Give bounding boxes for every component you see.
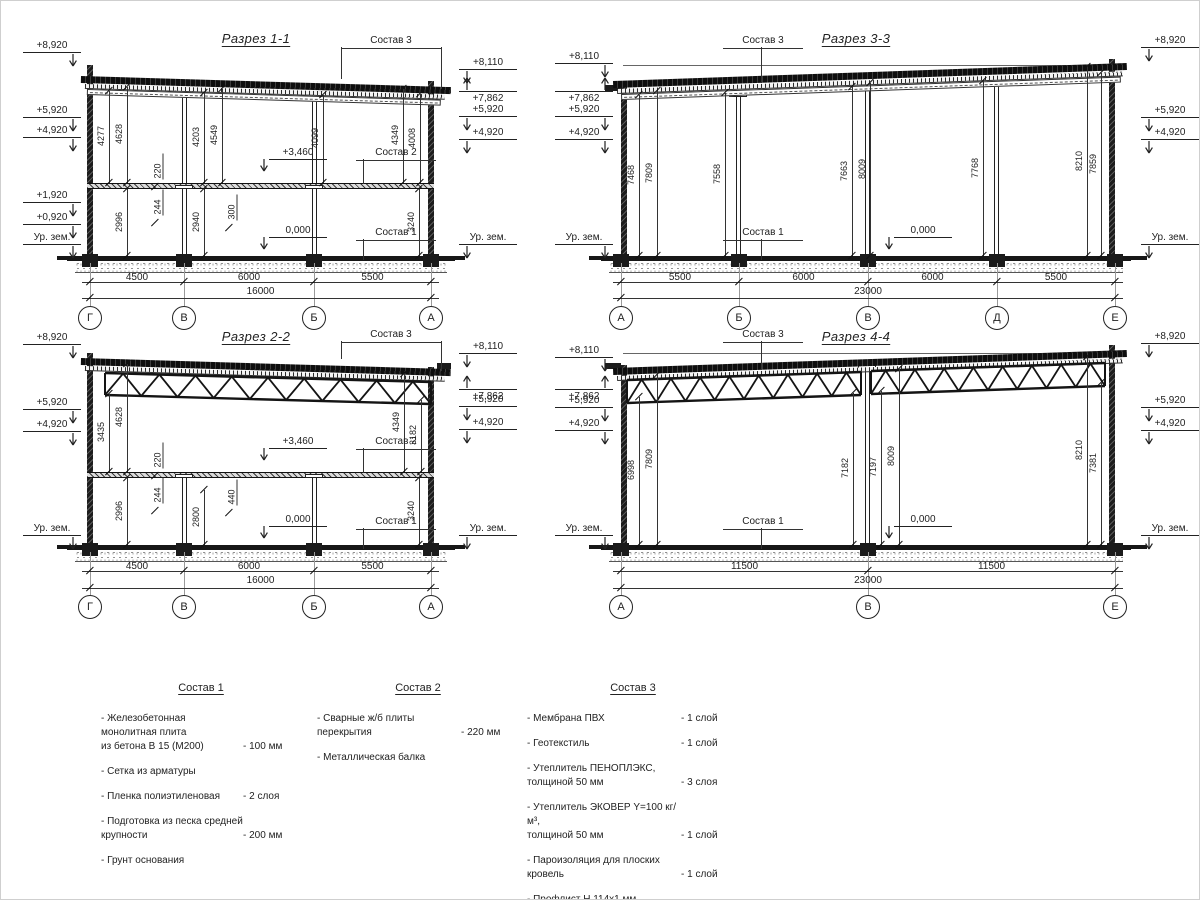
legend-item-text: - Мембрана ПВХ — [527, 712, 605, 726]
dim-value: 7182 — [840, 438, 850, 498]
dim-tick — [151, 507, 159, 515]
grid-bubble: Г — [78, 306, 102, 330]
level-arrow-icon — [258, 159, 270, 173]
dim-value: 2940 — [191, 192, 201, 252]
level-mark: 0,000 — [269, 225, 327, 238]
elevation-mark: +5,920 — [555, 104, 613, 117]
callout-label: Состав 2 — [351, 436, 441, 447]
dim-line — [657, 91, 658, 256]
legend-item: - Утеплитель ПЕНОПЛЭКС, толщиной 50 мм- … — [527, 762, 739, 790]
grid-bubble: В — [172, 306, 196, 330]
elevation-text: Ур. зем. — [459, 523, 517, 536]
callout-underline — [356, 240, 436, 241]
floor-slab — [87, 472, 434, 478]
elevation-arrow-icon — [1143, 49, 1155, 63]
level-mark: +3,460 — [269, 436, 327, 449]
dim-value: 7809 — [644, 143, 654, 203]
legend-item-text: - Подготовка из песка средней крупности — [101, 815, 243, 843]
legend-item-text: - Сварные ж/б плиты перекрытия — [317, 712, 461, 740]
elevation-arrow-icon — [599, 374, 611, 388]
elevation-mark: +4,920 — [23, 125, 81, 138]
column — [312, 478, 317, 545]
legend-title: Состав 1 — [101, 681, 301, 696]
elevation-mark: +8,920 — [1141, 331, 1199, 344]
dim-value: 6998 — [626, 440, 636, 500]
dim-total-line — [613, 588, 1123, 589]
legend-item-value: - 2 слоя — [243, 790, 301, 804]
grid-bubble: А — [609, 595, 633, 619]
elevation-text: +5,920 — [555, 104, 613, 117]
dim-line — [1101, 73, 1102, 256]
level-mark: +3,460 — [269, 147, 327, 160]
elevation-text: Ур. зем. — [1141, 232, 1199, 245]
elevation-arrow-icon — [67, 537, 79, 551]
grid-bubble: В — [856, 306, 880, 330]
legend-item: - Сварные ж/б плиты перекрытия- 220 мм — [317, 712, 519, 740]
elevation-arrow-icon — [67, 346, 79, 360]
elevation-arrow-icon — [599, 141, 611, 155]
elevation-text: +5,920 — [23, 397, 81, 410]
legend-column: Состав 2- Сварные ж/б плиты перекрытия- … — [317, 681, 519, 776]
drawing-canvas: Разрез 1-1427746284203454940994349400829… — [0, 0, 1200, 900]
callout-leader — [761, 47, 762, 83]
elevation-text: +8,110 — [459, 57, 517, 70]
elevation-arrow-icon — [67, 139, 79, 153]
elevation-arrow-icon — [461, 246, 473, 260]
callout-underline — [356, 449, 436, 450]
elevation-mark: +5,920 — [1141, 105, 1199, 118]
legend-column: Состав 1- Железобетонная монолитная плит… — [101, 681, 301, 879]
elevation-arrow-icon — [599, 537, 611, 551]
dim-value: 7768 — [970, 138, 980, 198]
column-capital — [175, 474, 193, 478]
elevation-mark: +4,920 — [1141, 127, 1199, 140]
elevation-mark: +8,110 — [459, 341, 517, 354]
grid-extension-line — [90, 263, 91, 306]
elevation-mark: +5,920 — [459, 394, 517, 407]
callout-underline — [341, 342, 441, 343]
dim-line — [109, 394, 110, 472]
column — [182, 189, 187, 257]
dim-value: 7558 — [712, 144, 722, 204]
elevation-mark: Ур. зем. — [23, 232, 81, 245]
legend-title: Состав 3 — [527, 681, 739, 696]
level-mark: 0,000 — [894, 225, 952, 238]
grid-extension-line — [997, 263, 998, 306]
elevation-text: +1,920 — [23, 190, 81, 203]
callout-leader — [761, 528, 762, 549]
legend-item-value: - 1 слой — [681, 737, 739, 751]
elevation-mark: Ур. зем. — [459, 232, 517, 245]
steel-truss — [103, 370, 433, 407]
elevation-text: +4,920 — [23, 125, 81, 138]
elevation-mark: Ур. зем. — [23, 523, 81, 536]
callout-leader — [363, 239, 364, 260]
legend-item-text: - Железобетонная монолитная плита из бет… — [101, 712, 243, 754]
grid-bubble: Б — [727, 306, 751, 330]
elevation-text: +4,920 — [555, 127, 613, 140]
dim-value: 8009 — [886, 426, 896, 486]
callout-underline — [356, 529, 436, 530]
grid-bubble: В — [856, 595, 880, 619]
dim-line — [419, 478, 420, 545]
dim-total-line — [82, 298, 439, 299]
dim-value: 8009 — [857, 139, 867, 199]
dim-value-small: 220 — [153, 154, 164, 180]
elevation-text: +7,862 — [555, 91, 613, 104]
elevation-text: +8,920 — [23, 40, 81, 53]
dim-value: 2996 — [114, 192, 124, 252]
elevation-text: Ур. зем. — [555, 523, 613, 536]
column — [994, 85, 999, 256]
legend-item-text: - Сетка из арматуры — [101, 765, 196, 779]
callout-label: Состав 1 — [718, 227, 808, 238]
elevation-mark: +4,920 — [1141, 418, 1199, 431]
elevation-mark: +5,920 — [459, 104, 517, 117]
elevation-text: Ур. зем. — [23, 232, 81, 245]
dim-total-label: 16000 — [90, 286, 431, 297]
dim-line — [639, 95, 640, 256]
dim-value: 3182 — [408, 405, 418, 465]
section-title: Разрез 1-1 — [176, 31, 336, 46]
elevation-arrow-icon — [1143, 537, 1155, 551]
legend-item-value: - 3 слоя — [681, 776, 739, 790]
dim-total-label: 23000 — [621, 575, 1115, 586]
elevation-mark: +4,920 — [23, 419, 81, 432]
dim-label: 6000 — [184, 561, 314, 572]
elevation-arrow-icon — [461, 431, 473, 445]
elevation-text: +8,920 — [1141, 35, 1199, 48]
level-arrow-icon — [258, 448, 270, 462]
elevation-mark: +5,920 — [1141, 395, 1199, 408]
elevation-text: +4,920 — [23, 419, 81, 432]
elevation-arrow-icon — [461, 374, 473, 388]
elevation-text: Ур. зем. — [1141, 523, 1199, 536]
elevation-arrow-icon — [599, 432, 611, 446]
dim-value: 4203 — [191, 107, 201, 167]
callout-leader — [441, 47, 442, 89]
legend-item-text: - Металлическая балка — [317, 751, 425, 765]
dim-value: 3240 — [406, 192, 416, 252]
elevation-mark: +4,920 — [459, 417, 517, 430]
callout-label: Состав 3 — [346, 329, 436, 340]
elevation-text: +8,920 — [23, 332, 81, 345]
callout-leader — [341, 341, 342, 359]
legend-item-value: - 1 слой — [681, 868, 739, 882]
column — [182, 478, 187, 545]
elevation-text: Ур. зем. — [555, 232, 613, 245]
dim-tick — [225, 509, 233, 517]
dim-value-small: 244 — [153, 190, 164, 216]
legend-item: - Пароизоляция для плоских кровель- 1 сл… — [527, 854, 739, 882]
dim-line — [983, 81, 984, 256]
elevation-arrow-icon — [461, 355, 473, 369]
elevation-text: +4,920 — [1141, 418, 1199, 431]
callout-underline — [723, 240, 803, 241]
elevation-text: +5,920 — [1141, 105, 1199, 118]
elevation-arrow-icon — [1143, 432, 1155, 446]
dim-total-line — [82, 588, 439, 589]
dim-line — [420, 94, 421, 183]
callout-underline — [723, 48, 803, 49]
dim-line — [853, 393, 854, 545]
dim-label: 4500 — [90, 272, 184, 283]
elevation-text: Ур. зем. — [459, 232, 517, 245]
dim-value: 7468 — [626, 145, 636, 205]
legend-item: - Сетка из арматуры — [101, 765, 301, 779]
steel-truss — [869, 360, 1107, 397]
dim-value: 7197 — [868, 437, 878, 497]
elevation-arrow-icon — [1143, 345, 1155, 359]
callout-underline — [723, 529, 803, 530]
dim-value: 7859 — [1088, 134, 1098, 194]
elevation-mark: Ур. зем. — [459, 523, 517, 536]
elevation-arrow-icon — [461, 141, 473, 155]
grid-bubble: А — [419, 595, 443, 619]
dim-line — [204, 93, 205, 183]
callout-leader — [761, 239, 762, 260]
elevation-mark: +8,110 — [459, 57, 517, 70]
level-mark: 0,000 — [269, 514, 327, 527]
elevation-text: +5,920 — [459, 394, 517, 407]
callout-leader — [761, 341, 762, 369]
callout-underline — [341, 48, 441, 49]
grid-bubble: А — [419, 306, 443, 330]
dim-total-label: 16000 — [90, 575, 431, 586]
dim-line — [870, 83, 871, 256]
grid-bubble: Д — [985, 306, 1009, 330]
elevation-text: +8,110 — [555, 345, 613, 358]
grid-extension-line — [621, 263, 622, 306]
level-arrow-icon — [883, 237, 895, 251]
elevation-mark: +4,920 — [459, 127, 517, 140]
legend-item-text: - Профлист Н 114х1 мм — [527, 893, 636, 900]
dim-value-small: 220 — [153, 443, 164, 469]
grid-extension-line — [739, 263, 740, 306]
elevation-text: Ур. зем. — [23, 523, 81, 536]
elevation-mark: +8,920 — [23, 332, 81, 345]
elevation-mark: +5,920 — [23, 397, 81, 410]
dim-line — [419, 189, 420, 256]
dim-value: 7809 — [644, 429, 654, 489]
legend-item-value: - 100 мм — [243, 740, 301, 754]
floor-slab — [87, 183, 434, 189]
grid-extension-line — [431, 263, 432, 306]
legend-item: - Геотекстиль- 1 слой — [527, 737, 739, 751]
legend-item: - Утеплитель ЭКОВЕР Y=100 кг/м³, толщино… — [527, 801, 739, 843]
elevation-mark: +4,920 — [555, 418, 613, 431]
column-capital — [175, 185, 193, 189]
dim-label: 5500 — [997, 272, 1115, 283]
legend-item-text: - Грунт основания — [101, 854, 184, 868]
legend-column: Состав 3- Мембрана ПВХ- 1 слой- Геотекст… — [527, 681, 739, 900]
legend-item: - Профлист Н 114х1 мм — [527, 893, 739, 900]
column — [312, 189, 317, 257]
callout-label: Состав 1 — [351, 227, 441, 238]
grid-bubble: А — [609, 306, 633, 330]
callout-label: Состав 1 — [351, 516, 441, 527]
elevation-mark: +8,110 — [555, 345, 613, 358]
elevation-mark: Ур. зем. — [555, 232, 613, 245]
wall — [1109, 59, 1115, 257]
dim-label: 4500 — [90, 561, 184, 572]
elevation-text: +0,920 — [23, 212, 81, 225]
elevation-arrow-icon — [67, 246, 79, 260]
elevation-arrow-icon — [67, 54, 79, 68]
legend-item-value: - 1 слой — [681, 712, 739, 726]
grid-bubble: Б — [302, 306, 326, 330]
elevation-arrow-icon — [599, 246, 611, 260]
callout-underline — [723, 342, 803, 343]
dim-label: 11500 — [868, 561, 1115, 572]
grid-extension-line — [1115, 263, 1116, 306]
callout-label: Состав 2 — [351, 147, 441, 158]
dim-value: 4277 — [96, 106, 106, 166]
elevation-text: +4,920 — [1141, 127, 1199, 140]
grid-extension-line — [868, 263, 869, 306]
elevation-text: +4,920 — [555, 418, 613, 431]
dim-line — [852, 87, 853, 256]
level-arrow-icon — [258, 526, 270, 540]
dim-value: 4628 — [114, 387, 124, 447]
elevation-arrow-icon — [461, 76, 473, 90]
elevation-arrow-icon — [599, 359, 611, 373]
dim-line — [109, 91, 110, 183]
column-capital — [305, 474, 323, 478]
grid-bubble: Г — [78, 595, 102, 619]
level-mark: 0,000 — [894, 514, 952, 527]
column — [182, 93, 187, 183]
dim-value: 4628 — [114, 104, 124, 164]
elevation-mark: +8,920 — [23, 40, 81, 53]
dim-label: 11500 — [621, 561, 868, 572]
legend-item-text: - Пароизоляция для плоских кровель — [527, 854, 681, 882]
callout-label: Состав 3 — [346, 35, 436, 46]
callout-label: Состав 3 — [718, 329, 808, 340]
dim-value-small: 244 — [153, 478, 164, 504]
grid-bubble: Е — [1103, 306, 1127, 330]
dim-line — [403, 89, 404, 183]
grid-bubble: В — [172, 595, 196, 619]
dim-line — [639, 397, 640, 545]
level-arrow-icon — [258, 237, 270, 251]
elevation-text: +5,920 — [459, 104, 517, 117]
elevation-arrow-icon — [1143, 246, 1155, 260]
elevation-mark: +0,920 — [23, 212, 81, 225]
dim-value: 4008 — [407, 108, 417, 168]
wall — [1109, 345, 1115, 545]
elevation-mark: +5,920 — [555, 395, 613, 408]
dim-line — [127, 87, 128, 183]
elevation-text: +8,110 — [459, 341, 517, 354]
dim-tick — [151, 219, 159, 227]
legend-item-text: - Утеплитель ЭКОВЕР Y=100 кг/м³, толщино… — [527, 801, 681, 843]
elevation-mark: +4,920 — [555, 127, 613, 140]
dim-label: 6000 — [868, 272, 997, 283]
elevation-arrow-icon — [1143, 141, 1155, 155]
grid-bubble: Е — [1103, 595, 1127, 619]
elevation-text: +5,920 — [555, 395, 613, 408]
callout-leader — [363, 528, 364, 549]
callout-leader — [341, 47, 342, 79]
wall — [87, 353, 93, 545]
dim-value-small: 440 — [227, 480, 238, 506]
dim-line — [127, 478, 128, 545]
level-arrow-icon — [883, 526, 895, 540]
dim-value: 8210 — [1074, 131, 1084, 191]
elevation-text: +5,920 — [1141, 395, 1199, 408]
legend-item-text: - Геотекстиль — [527, 737, 590, 751]
callout-label: Состав 1 — [718, 516, 808, 527]
elevation-arrow-icon — [461, 537, 473, 551]
legend-title: Состав 2 — [317, 681, 519, 696]
legend-item: - Подготовка из песка средней крупности-… — [101, 815, 301, 843]
elevation-text: +4,920 — [459, 127, 517, 140]
elevation-mark: +7,862 — [459, 91, 517, 104]
dim-value: 2996 — [114, 481, 124, 541]
dim-label: 5500 — [621, 272, 739, 283]
elevation-text: +8,920 — [1141, 331, 1199, 344]
legend-item-text: - Утеплитель ПЕНОПЛЭКС, толщиной 50 мм — [527, 762, 655, 790]
elevation-mark: +7,862 — [555, 91, 613, 104]
dim-line — [204, 490, 205, 545]
callout-label: Состав 3 — [718, 35, 808, 46]
elevation-text: +4,920 — [459, 417, 517, 430]
dim-label: 6000 — [184, 272, 314, 283]
elevation-mark: +8,920 — [1141, 35, 1199, 48]
dim-line — [222, 89, 223, 183]
grid-bubble: Б — [302, 595, 326, 619]
dim-value: 7381 — [1088, 433, 1098, 493]
dim-label: 5500 — [314, 561, 431, 572]
callout-leader — [363, 159, 364, 184]
callout-underline — [356, 160, 436, 161]
elevation-text: +5,920 — [23, 105, 81, 118]
grid-extension-line — [314, 263, 315, 306]
grid-extension-line — [184, 263, 185, 306]
dim-value-small: 300 — [227, 195, 238, 221]
legend-item: - Железобетонная монолитная плита из бет… — [101, 712, 301, 754]
dim-line — [1101, 383, 1102, 545]
dim-value: 3240 — [406, 481, 416, 541]
dim-value: 3435 — [96, 402, 106, 462]
elevation-mark: Ур. зем. — [555, 523, 613, 536]
callout-leader — [441, 341, 442, 371]
legend-item: - Мембрана ПВХ- 1 слой — [527, 712, 739, 726]
dim-line — [127, 189, 128, 256]
legend-item: - Грунт основания — [101, 854, 301, 868]
dim-label: 5500 — [314, 272, 431, 283]
dim-line — [881, 391, 882, 545]
dim-line — [323, 95, 324, 183]
elevation-arrow-icon — [599, 76, 611, 90]
dim-line — [404, 374, 405, 472]
dim-line — [657, 375, 658, 545]
dim-value: 4549 — [209, 105, 219, 165]
elevation-text: +7,862 — [459, 91, 517, 104]
elevation-mark: Ур. зем. — [1141, 523, 1199, 536]
dim-line — [204, 189, 205, 256]
legend-item-text: - Пленка полиэтиленовая — [101, 790, 220, 804]
legend-item-value: - 200 мм — [243, 829, 301, 843]
legend-item-value: - 220 мм — [461, 726, 519, 740]
steel-truss — [625, 369, 863, 406]
elevation-mark: +1,920 — [23, 190, 81, 203]
dim-total-line — [613, 298, 1123, 299]
legend-item-value: - 1 слой — [681, 829, 739, 843]
dim-value: 8210 — [1074, 420, 1084, 480]
dim-value: 2800 — [191, 487, 201, 547]
